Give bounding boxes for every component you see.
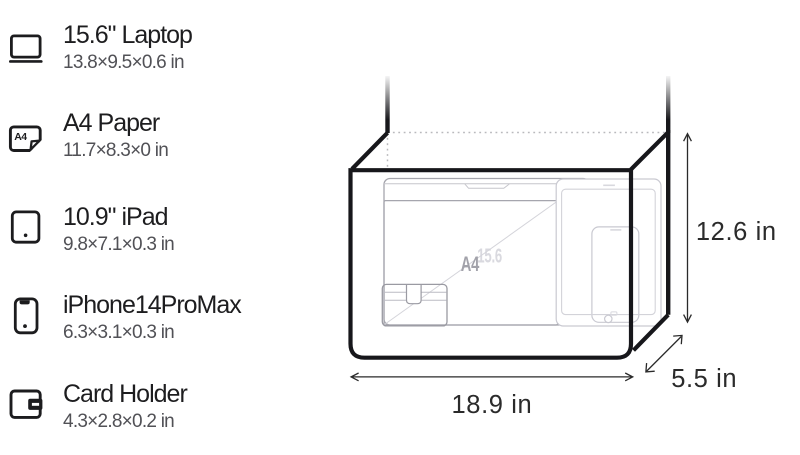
svg-text:A4: A4 (461, 252, 479, 275)
svg-text:5.5 in: 5.5 in (671, 365, 737, 393)
svg-text:12.6 in: 12.6 in (696, 218, 777, 246)
svg-text:18.9 in: 18.9 in (452, 391, 533, 419)
